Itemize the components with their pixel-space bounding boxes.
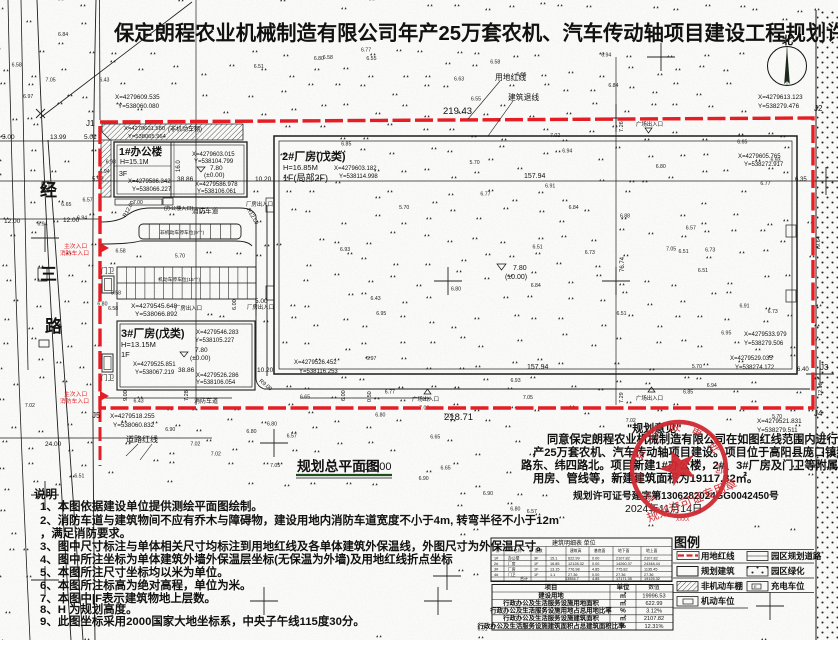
svg-text:6.90: 6.90	[419, 476, 429, 482]
svg-text:Y=538066.892: Y=538066.892	[135, 311, 178, 318]
svg-text:Y=538060.080: Y=538060.080	[118, 103, 160, 110]
svg-text:6.65: 6.65	[737, 140, 747, 146]
svg-text:1、本图依据建设单位提供测绘平面图绘制。: 1、本图依据建设单位提供测绘平面图绘制。	[40, 499, 263, 513]
svg-text:项目: 项目	[545, 582, 558, 591]
svg-text:2、消防车道与建筑物间不应有乔木与障碍物，建设用地内消防车道: 2、消防车道与建筑物间不应有乔木与障碍物，建设用地内消防车道宽度不小于4m, 转…	[40, 513, 559, 527]
svg-text:㎡: ㎡	[620, 613, 627, 622]
svg-text:8、H 为规划高度。: 8、H 为规划高度。	[40, 602, 137, 616]
svg-text:用地红线: 用地红线	[700, 551, 735, 561]
svg-text:5.01: 5.01	[84, 134, 97, 141]
svg-text:6.97: 6.97	[366, 356, 376, 362]
svg-text:X=4279603.015: X=4279603.015	[192, 152, 235, 158]
svg-text:(办公楼入口): (办公楼入口)	[164, 204, 194, 212]
svg-text:0.50: 0.50	[367, 391, 373, 402]
svg-text:消防车入口: 消防车入口	[60, 397, 89, 405]
svg-text:2107.82: 2107.82	[616, 557, 630, 561]
svg-text:7.00: 7.00	[133, 200, 143, 206]
svg-text:6.90: 6.90	[165, 427, 175, 433]
svg-text:1F: 1F	[534, 562, 539, 566]
svg-text:17171.35: 17171.35	[616, 577, 632, 581]
svg-text:Y=538279.511: Y=538279.511	[757, 427, 798, 434]
svg-text:7.80: 7.80	[195, 347, 208, 354]
svg-text:X=4279545.648: X=4279545.648	[131, 303, 177, 310]
svg-text:三: 三	[40, 265, 57, 284]
svg-text:X=4279546.283: X=4279546.283	[196, 330, 239, 336]
svg-text:办公楼: 办公楼	[508, 556, 520, 561]
svg-text:道路红线: 道路红线	[126, 434, 158, 444]
svg-text:6.91: 6.91	[545, 184, 555, 190]
svg-text:地下面: 地下面	[618, 548, 630, 553]
svg-text:Y=538066.227: Y=538066.227	[132, 187, 172, 193]
svg-text:19996.53: 19996.53	[642, 593, 665, 599]
svg-text:6.84: 6.84	[58, 32, 68, 38]
svg-text:38.86: 38.86	[178, 367, 195, 374]
svg-text:%: %	[620, 608, 626, 615]
svg-text:6.51: 6.51	[616, 311, 626, 317]
svg-text:充电车位: 充电车位	[771, 581, 805, 591]
svg-text:产25万套农机、汽车传动轴项目建设。项目位于高阳县庞口镇经三: 产25万套农机、汽车传动轴项目建设。项目位于高阳县庞口镇经三	[533, 445, 838, 459]
svg-text:6.63: 6.63	[454, 77, 464, 83]
svg-text:3F: 3F	[534, 557, 539, 561]
svg-text:7.02: 7.02	[211, 451, 221, 457]
svg-text:6.51: 6.51	[74, 474, 84, 480]
svg-text:622.99: 622.99	[568, 557, 580, 561]
svg-text:5.70: 5.70	[399, 205, 409, 211]
svg-text:13.15: 13.15	[550, 568, 560, 572]
svg-text:5.92: 5.92	[92, 177, 104, 183]
svg-text:消防车道: 消防车道	[192, 206, 219, 215]
svg-text:1F: 1F	[121, 350, 130, 359]
svg-text:X=4279518.255: X=4279518.255	[110, 413, 155, 420]
svg-text:经: 经	[40, 180, 57, 200]
svg-text:6.97: 6.97	[23, 94, 33, 100]
svg-text:㎡: ㎡	[620, 598, 627, 607]
svg-text:6.51: 6.51	[678, 249, 688, 255]
svg-text:7.05: 7.05	[270, 463, 280, 469]
svg-text:12.00: 12.00	[4, 218, 21, 225]
svg-text:7.05: 7.05	[666, 246, 676, 252]
svg-text:%: %	[620, 623, 626, 630]
svg-text:12.31%: 12.31%	[645, 624, 664, 630]
svg-text:3、图中尺寸标注与单体相关尺寸均标注到用地红线及各单体建筑外: 3、图中尺寸标注与单体相关尺寸均标注到用地红线及各单体建筑外保温线，外图尺寸为外…	[40, 539, 548, 553]
svg-text:7.02: 7.02	[190, 442, 200, 448]
svg-text:XXXX: XXXX	[676, 517, 690, 523]
svg-text:16.85: 16.85	[550, 562, 560, 566]
svg-text:J4: J4	[814, 409, 823, 418]
svg-text:地上面: 地上面	[646, 548, 658, 553]
svg-text:X=4279586.978: X=4279586.978	[195, 182, 238, 188]
svg-text:3.12%: 3.12%	[646, 609, 662, 615]
svg-text:4、图中所注坐标为单体建筑外墙外保温层坐标(无保温为外墙)及: 4、图中所注坐标为单体建筑外墙外保温层坐标(无保温为外墙)及用地红线折点坐标	[40, 552, 453, 566]
svg-text:5.00: 5.00	[2, 134, 15, 141]
svg-text:14260.37: 14260.37	[616, 562, 632, 566]
svg-text:19125.32: 19125.32	[644, 577, 660, 581]
svg-text:X=4279601.580: X=4279601.580	[124, 126, 165, 132]
svg-text:7、本图中|F表示建筑物地上层数。: 7、本图中|F表示建筑物地上层数。	[40, 591, 216, 605]
svg-text:X=4279603.182: X=4279603.182	[334, 166, 377, 172]
svg-text:16.0: 16.0	[176, 160, 182, 172]
svg-text:12128.32: 12128.32	[568, 562, 584, 566]
svg-text:园区规划道路: 园区规划道路	[771, 551, 822, 561]
svg-text:1#办公楼: 1#办公楼	[119, 145, 163, 158]
svg-text:775.82: 775.82	[616, 568, 628, 572]
svg-text:6.55: 6.55	[471, 97, 481, 103]
svg-text:15.1: 15.1	[550, 557, 557, 561]
svg-text:广场出入口: 广场出入口	[636, 394, 663, 402]
svg-text:Y=538279.506: Y=538279.506	[744, 341, 784, 347]
svg-text:5.70: 5.70	[175, 254, 185, 260]
svg-text:6.90: 6.90	[483, 491, 493, 497]
svg-text:6.77: 6.77	[480, 191, 490, 197]
svg-text:6.80: 6.80	[246, 429, 256, 435]
svg-text:6.84: 6.84	[531, 283, 541, 289]
svg-text:Y=538279.476: Y=538279.476	[758, 103, 800, 110]
svg-text:3#厂房(戊类): 3#厂房(戊类)	[121, 326, 185, 340]
svg-text:Y=538105.227: Y=538105.227	[195, 338, 235, 344]
svg-text:1.1: 1.1	[550, 573, 555, 577]
svg-text:6.00: 6.00	[232, 299, 238, 310]
svg-text:6.43: 6.43	[134, 399, 144, 405]
svg-text:7.05: 7.05	[523, 395, 533, 401]
svg-text:路: 路	[45, 316, 63, 336]
svg-text:，满足消防要求。: ，满足消防要求。	[40, 526, 131, 540]
svg-text:6、本图所注标高为绝对高程，单位为米。: 6、本图所注标高为绝对高程，单位为米。	[40, 578, 251, 592]
svg-text:0.00: 0.00	[592, 562, 599, 566]
svg-text:机动车停车位(15个): 机动车停车位(15个)	[158, 276, 201, 283]
svg-text:3F: 3F	[119, 171, 127, 178]
svg-text:6.65: 6.65	[300, 394, 310, 400]
svg-text:厂房: 厂房	[508, 561, 516, 566]
svg-text:7.05: 7.05	[46, 77, 56, 83]
svg-text:非机动车停车位(9个): 非机动车停车位(9个)	[160, 229, 205, 236]
svg-text:6.84: 6.84	[569, 205, 579, 211]
svg-text:9、此图坐标采用2000国家大地坐标系，中央子午线115度3: 9、此图坐标采用2000国家大地坐标系，中央子午线115度30分。	[40, 614, 365, 628]
svg-text:E: E	[754, 584, 757, 589]
svg-text:(±0.00): (±0.00)	[204, 172, 225, 179]
svg-text:X=4279533.979: X=4279533.979	[744, 332, 787, 338]
svg-text:X=4279529.035: X=4279529.035	[730, 356, 773, 362]
svg-text:厂房出入口: 厂房出入口	[175, 304, 202, 312]
svg-text:6.73: 6.73	[768, 309, 778, 315]
svg-text:6.40: 6.40	[797, 367, 809, 373]
svg-text:7.02: 7.02	[25, 403, 35, 409]
svg-text:主次入口: 主次入口	[64, 390, 87, 398]
svg-text:6.57: 6.57	[686, 225, 696, 231]
svg-text:4.85: 4.85	[592, 577, 599, 581]
svg-text:6.85: 6.85	[341, 142, 351, 148]
svg-text:行政办公及生活服务设施用地面积: 行政办公及生活服务设施用地面积	[502, 598, 599, 607]
svg-text:Y=538274.172: Y=538274.172	[735, 365, 775, 371]
svg-text:合计: 合计	[520, 575, 528, 581]
svg-text:776.98: 776.98	[568, 568, 580, 572]
svg-text:6.51: 6.51	[698, 268, 708, 274]
svg-text:6.55: 6.55	[366, 56, 376, 62]
svg-text:政: 政	[668, 420, 680, 435]
svg-text:6.51: 6.51	[533, 244, 543, 250]
svg-text:12.00: 12.00	[63, 217, 80, 224]
svg-text:门卫: 门卫	[101, 266, 115, 275]
svg-text:6.43: 6.43	[99, 77, 109, 83]
svg-text:说明: 说明	[34, 487, 57, 501]
svg-text:建设用地: 建设用地	[537, 590, 564, 599]
svg-text:7.26: 7.26	[619, 121, 625, 132]
svg-text:园区绿化: 园区绿化	[771, 566, 805, 576]
svg-text:X=4279605.765: X=4279605.765	[738, 154, 781, 160]
svg-text:5.70: 5.70	[470, 160, 480, 166]
svg-text:6.57: 6.57	[83, 198, 93, 204]
svg-text:24348.44: 24348.44	[644, 562, 660, 566]
svg-text:(±0.00): (±0.00)	[505, 274, 527, 281]
svg-text:X=4279526.452: X=4279526.452	[294, 360, 337, 366]
svg-text:6.95: 6.95	[376, 311, 386, 317]
svg-text:6.85: 6.85	[683, 390, 693, 396]
svg-text:6.73: 6.73	[585, 250, 595, 256]
svg-text:157.94: 157.94	[527, 364, 549, 371]
svg-text:13554.7: 13554.7	[565, 577, 579, 581]
svg-text:X=4279521.831: X=4279521.831	[757, 418, 802, 425]
svg-text:1F(局部2F): 1F(局部2F)	[283, 172, 328, 183]
svg-text:219.43: 219.43	[443, 106, 472, 117]
svg-text:序: 序	[496, 548, 500, 553]
svg-text:9.00: 9.00	[123, 390, 129, 401]
svg-text:用地红线: 用地红线	[495, 72, 526, 82]
svg-text:0.00: 0.00	[592, 557, 599, 561]
svg-text:6.94: 6.94	[601, 53, 611, 59]
svg-text:5、本图所注尺寸坐标均以米为单位。: 5、本图所注尺寸坐标均以米为单位。	[40, 565, 229, 579]
svg-text:X=4279526.286: X=4279526.286	[196, 373, 239, 379]
svg-text:1F: 1F	[534, 573, 539, 577]
svg-text:㎡: ㎡	[620, 590, 627, 599]
svg-text:6.58: 6.58	[323, 55, 333, 61]
svg-text:79.64: 79.64	[816, 236, 822, 250]
svg-text:行政办公及生活服务设施建筑面积占总建筑面积比率: 行政办公及生活服务设施建筑面积占总建筑面积比率	[477, 621, 626, 630]
svg-text:H=15.1M: H=15.1M	[120, 159, 149, 166]
svg-text:6.95: 6.95	[721, 330, 731, 336]
svg-text:局: 局	[714, 463, 727, 474]
svg-text:6.65: 6.65	[61, 202, 71, 208]
svg-text:名称: 名称	[514, 548, 522, 553]
svg-text:6.80: 6.80	[451, 287, 461, 293]
svg-text:1135.45: 1135.45	[644, 568, 657, 572]
svg-text:(±0.00): (±0.00)	[190, 355, 211, 362]
svg-text:12.15: 12.15	[818, 382, 824, 396]
svg-text:建筑明细表 单位: 建筑明细表 单位	[552, 539, 596, 547]
svg-text:6.65: 6.65	[430, 434, 440, 440]
svg-text:13.99: 13.99	[50, 134, 67, 141]
svg-text:6.84: 6.84	[608, 83, 618, 89]
svg-text:门卫: 门卫	[101, 373, 115, 382]
svg-text:1F: 1F	[534, 568, 539, 572]
svg-text:规划建筑: 规划建筑	[701, 566, 735, 576]
svg-text:6.94: 6.94	[562, 148, 572, 154]
svg-text:6.00: 6.00	[341, 390, 347, 401]
svg-text:H=16.85M: H=16.85M	[283, 163, 318, 172]
svg-text:6.73: 6.73	[705, 248, 715, 254]
svg-text:6.80: 6.80	[314, 56, 324, 62]
svg-text:6.77: 6.77	[361, 47, 371, 53]
svg-text:Y=538106.054: Y=538106.054	[196, 380, 236, 386]
svg-text:J5: J5	[92, 411, 101, 420]
svg-text:保定朗程农业机械制造有限公司年产25万套农机、汽车传动轴项目: 保定朗程农业机械制造有限公司年产25万套农机、汽车传动轴项目建设工程规划许可证附…	[113, 21, 838, 45]
svg-text:Y=538067.219: Y=538067.219	[135, 370, 175, 376]
svg-text:6.80: 6.80	[656, 164, 666, 170]
svg-text:157.94: 157.94	[524, 173, 546, 180]
svg-text:基底面: 基底面	[594, 548, 606, 553]
svg-text:Y=538116.253: Y=538116.253	[299, 369, 338, 375]
svg-text:Y=538060.832: Y=538060.832	[113, 422, 155, 429]
svg-text:6.80: 6.80	[375, 413, 385, 419]
svg-text:厂房: 厂房	[508, 567, 516, 572]
svg-text:5.00: 5.00	[255, 298, 268, 305]
svg-text:6.94: 6.94	[707, 383, 717, 389]
svg-text:6.91: 6.91	[739, 303, 749, 309]
svg-text:7.28: 7.28	[184, 390, 190, 401]
svg-text:X=4279613.123: X=4279613.123	[758, 94, 803, 101]
svg-text:6.58: 6.58	[116, 249, 126, 255]
svg-text:24.00: 24.00	[45, 441, 62, 448]
svg-text:7.80: 7.80	[513, 265, 527, 272]
svg-text:Y=538272.917: Y=538272.917	[744, 162, 784, 168]
svg-text:6.65: 6.65	[441, 465, 451, 471]
svg-text:行政办公及生活服务设施建筑面积: 行政办公及生活服务设施建筑面积	[502, 613, 599, 622]
svg-text:单位: 单位	[617, 582, 630, 591]
svg-text:6.57: 6.57	[287, 433, 297, 439]
svg-text:机动车位: 机动车位	[701, 596, 735, 606]
svg-text:X=4279586.342: X=4279586.342	[128, 179, 171, 185]
svg-text:6.58: 6.58	[490, 60, 500, 66]
svg-text:J2: J2	[814, 104, 823, 113]
svg-text:6.43: 6.43	[371, 296, 381, 302]
svg-text:6.93: 6.93	[510, 378, 520, 384]
svg-text:建筑退线: 建筑退线	[508, 92, 539, 102]
svg-text:7.80: 7.80	[210, 165, 223, 172]
svg-text:H=13.15M: H=13.15M	[121, 340, 156, 349]
svg-text:2107.82: 2107.82	[644, 557, 658, 561]
svg-text:622.99: 622.99	[645, 601, 662, 607]
svg-text:6.77: 6.77	[385, 389, 395, 395]
svg-text:4.85: 4.85	[592, 568, 599, 572]
svg-text:图例: 图例	[674, 535, 700, 550]
svg-text:2107.82: 2107.82	[644, 616, 664, 622]
svg-text:6.93: 6.93	[340, 247, 350, 253]
svg-text:(非机动车棚): (非机动车棚)	[168, 125, 202, 133]
svg-text:J3: J3	[820, 363, 829, 372]
svg-text:Y=538114.998: Y=538114.998	[339, 174, 378, 180]
svg-text:X=4279525.851: X=4279525.851	[133, 362, 176, 368]
svg-text:消防车道: 消防车道	[194, 397, 218, 405]
svg-text:门卫: 门卫	[508, 572, 516, 577]
svg-text:广场出入口: 广场出入口	[412, 395, 439, 403]
svg-text:主次入口: 主次入口	[64, 242, 87, 250]
svg-text:厂房出入口: 厂房出入口	[246, 200, 273, 208]
svg-text:6.88: 6.88	[620, 213, 630, 219]
svg-text:1:500: 1:500	[364, 461, 392, 473]
svg-text:广场出入口: 广场出入口	[636, 120, 663, 128]
svg-text:218.71: 218.71	[444, 412, 473, 423]
svg-text:数值: 数值	[648, 583, 660, 591]
svg-text:6.51: 6.51	[254, 64, 264, 70]
svg-text:6.77: 6.77	[760, 181, 770, 187]
svg-text:10.20: 10.20	[255, 176, 272, 183]
svg-text:6.35: 6.35	[795, 177, 807, 183]
svg-text:建筑高: 建筑高	[570, 548, 582, 553]
svg-text:6.80: 6.80	[267, 422, 277, 428]
svg-text:10.20: 10.20	[257, 367, 274, 374]
svg-text:38.86: 38.86	[177, 176, 194, 183]
svg-text:Y=538065.964: Y=538065.964	[128, 134, 167, 140]
svg-text:J1: J1	[86, 119, 95, 128]
svg-text:行政办公及生活服务设施用地占总用地比率: 行政办公及生活服务设施用地占总用地比率	[489, 606, 612, 615]
svg-text:6.58: 6.58	[12, 63, 22, 69]
svg-text:层数: 层数	[535, 548, 543, 553]
svg-text:76.74: 76.74	[620, 256, 626, 272]
svg-text:6.80: 6.80	[510, 507, 520, 513]
svg-text:X=4279609.535: X=4279609.535	[115, 94, 160, 101]
svg-text:Y=538106.061: Y=538106.061	[197, 189, 237, 195]
svg-text:2#厂房(戊类): 2#厂房(戊类)	[282, 149, 346, 163]
svg-text:消防车入口: 消防车入口	[60, 249, 89, 257]
svg-text:非机动车棚: 非机动车棚	[701, 581, 743, 591]
svg-text:7.29: 7.29	[619, 392, 625, 403]
